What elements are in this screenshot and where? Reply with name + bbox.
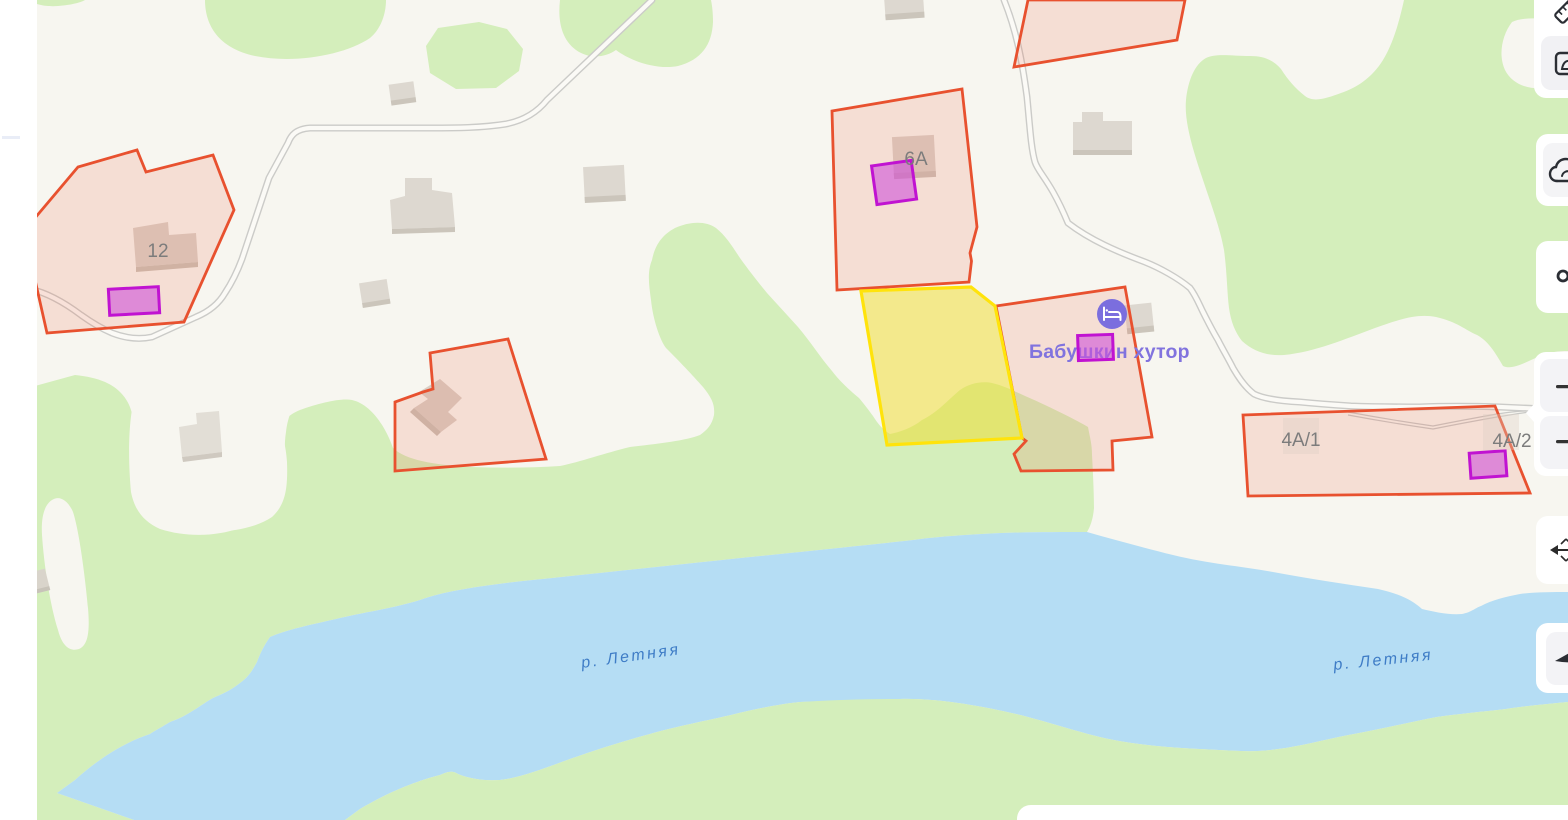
svg-text:4А/2: 4А/2 <box>1492 431 1531 452</box>
svg-text:4А/1: 4А/1 <box>1281 430 1320 451</box>
svg-text:6А: 6А <box>904 149 928 170</box>
svg-text:12: 12 <box>147 241 168 262</box>
